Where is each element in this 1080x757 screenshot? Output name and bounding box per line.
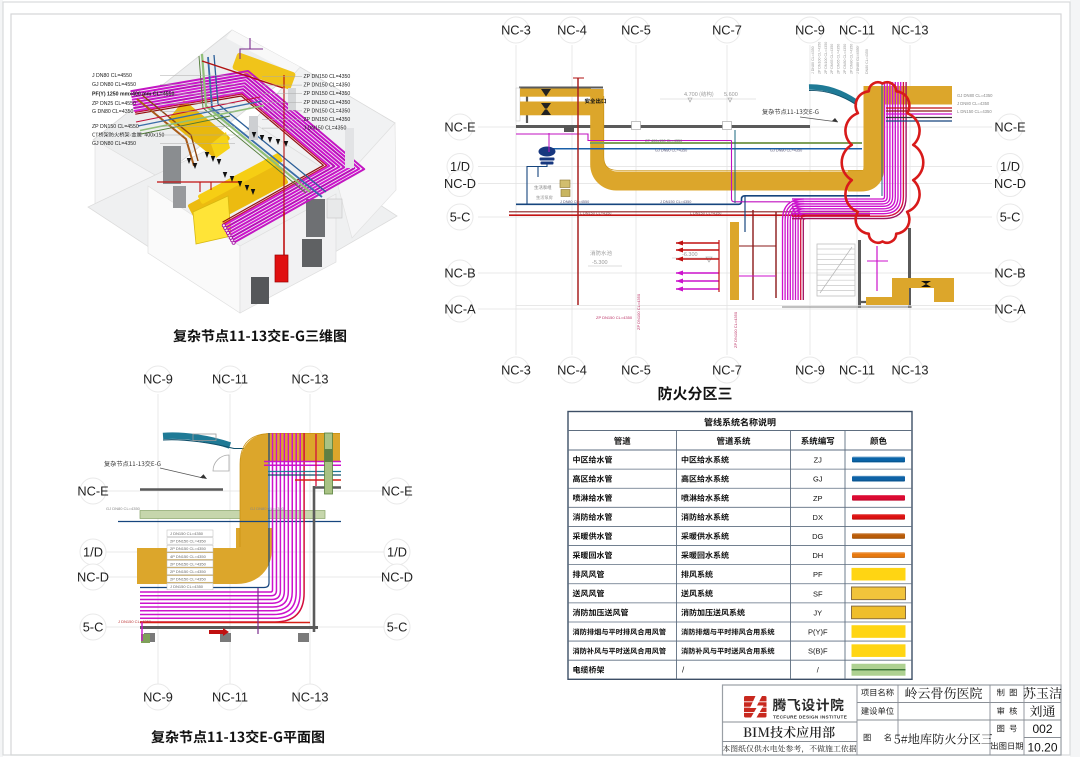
svg-text:TECFURE DESIGN INSTITUTE: TECFURE DESIGN INSTITUTE (773, 715, 847, 720)
svg-text:GJ DN80 CL=4350: GJ DN80 CL=4350 (106, 506, 141, 511)
svg-text:J DN80 CL=4550: J DN80 CL=4550 (560, 200, 589, 204)
svg-text:J DN150 CL=4350: J DN150 CL=4350 (170, 531, 204, 536)
svg-text:J DN150 CL=4350: J DN150 CL=4350 (118, 619, 152, 624)
svg-text:G DN80 CL=4350: G DN80 CL=4350 (92, 109, 133, 115)
svg-text:S(B)F: S(B)F (808, 647, 828, 656)
svg-text:NC-5: NC-5 (621, 22, 651, 37)
svg-text:DH: DH (812, 551, 823, 560)
svg-text:PF(Y) 1250 mmx400 mm CL=4550: PF(Y) 1250 mmx400 mm CL=4550 (92, 92, 174, 98)
svg-text:NC-9: NC-9 (795, 362, 825, 377)
svg-text:4.700: 4.700 (684, 92, 698, 98)
svg-text:NC-9: NC-9 (143, 371, 173, 386)
svg-text:ZP DN150 CL=4350: ZP DN150 CL=4350 (304, 74, 351, 80)
svg-text:NC-E: NC-E (381, 483, 412, 498)
svg-text:NC-D: NC-D (77, 569, 109, 584)
svg-text:2P DN150 CL=4350: 2P DN150 CL=4350 (170, 577, 207, 582)
svg-text:NC-11: NC-11 (839, 22, 875, 37)
svg-text:5-C: 5-C (83, 619, 104, 634)
svg-text:NC-E: NC-E (444, 119, 475, 134)
svg-text:NC-9: NC-9 (795, 22, 825, 37)
svg-text:J DN150 CL=4350: J DN150 CL=4350 (660, 200, 691, 204)
svg-text:2P DN100 CL=4350: 2P DN100 CL=4350 (824, 42, 828, 74)
svg-text:NC-A: NC-A (994, 301, 1026, 316)
svg-text:NC-3: NC-3 (501, 362, 531, 377)
svg-text:NC-11: NC-11 (212, 371, 248, 386)
svg-text:5-C: 5-C (387, 619, 408, 634)
svg-text:ZP DN25 CL=4550: ZP DN25 CL=4550 (92, 101, 136, 107)
svg-text:-5.300: -5.300 (592, 260, 608, 266)
svg-text:CT 400x150 CL=4350: CT 400x150 CL=4350 (645, 139, 682, 143)
svg-text:GJ: GJ (813, 475, 823, 484)
svg-text:2P DN150 CL=4350: 2P DN150 CL=4350 (170, 546, 207, 551)
svg-text:DX: DX (813, 513, 823, 522)
svg-text:J DN80 CL=4350: J DN80 CL=4350 (856, 46, 860, 74)
svg-text:NC-13: NC-13 (292, 371, 329, 386)
svg-text:L DN150 CL=4350: L DN150 CL=4350 (580, 212, 611, 216)
svg-text:2P DN150 CL=4350: 2P DN150 CL=4350 (170, 569, 207, 574)
svg-text:ZJ: ZJ (814, 456, 823, 465)
svg-text:ZP DN100 CL=4350: ZP DN100 CL=4350 (733, 311, 738, 348)
svg-text:J DN80 CL=4350: J DN80 CL=4350 (957, 101, 990, 106)
svg-text:ZP DN150 CL=4350: ZP DN150 CL=4350 (304, 117, 351, 123)
svg-text:GJ DN80 CL=4350: GJ DN80 CL=4350 (655, 149, 687, 153)
svg-text:NC-7: NC-7 (712, 22, 742, 37)
svg-text:NC-7: NC-7 (712, 362, 742, 377)
svg-text:GJ DN80 CL=4550: GJ DN80 CL=4550 (92, 82, 136, 88)
svg-text:10.20: 10.20 (1027, 741, 1057, 755)
svg-text:NC-4: NC-4 (557, 22, 587, 37)
svg-text:NC-4: NC-4 (557, 362, 587, 377)
svg-text:NC-D: NC-D (381, 569, 413, 584)
svg-text:002: 002 (1032, 722, 1052, 736)
svg-text:NC-5: NC-5 (621, 362, 651, 377)
svg-text:2P DN80 CL=4350: 2P DN80 CL=4350 (849, 44, 853, 74)
svg-text:NC-11: NC-11 (212, 689, 248, 704)
svg-text:2P DN80 CL=4350: 2P DN80 CL=4350 (843, 44, 847, 74)
svg-text:PF: PF (813, 570, 823, 579)
svg-text:2P DN65 CL=4350: 2P DN65 CL=4350 (837, 44, 841, 74)
svg-text:SF: SF (813, 589, 823, 598)
svg-text:NC-11: NC-11 (839, 362, 875, 377)
svg-text:P(Y)F: P(Y)F (808, 628, 828, 637)
svg-text:ZP DN150 CL=4350: ZP DN150 CL=4350 (596, 315, 633, 320)
svg-text:DN80 CL=4350: DN80 CL=4350 (865, 49, 869, 74)
svg-text:NC-E: NC-E (77, 483, 108, 498)
svg-text:NC-E: NC-E (994, 119, 1025, 134)
svg-text:NC-9: NC-9 (143, 689, 173, 704)
svg-text:1/D: 1/D (387, 544, 407, 559)
svg-text:NC-A: NC-A (444, 301, 476, 316)
svg-text:NC-B: NC-B (994, 265, 1025, 280)
svg-text:NC-13: NC-13 (892, 22, 929, 37)
svg-text:L DN150 CL=4350: L DN150 CL=4350 (690, 212, 721, 216)
svg-text:J DN150 CL=4350: J DN150 CL=4350 (304, 126, 347, 132)
svg-text:-6.300: -6.300 (682, 252, 698, 258)
svg-text:5.600: 5.600 (724, 92, 738, 98)
svg-text:2P DN150 CL=4350: 2P DN150 CL=4350 (170, 539, 207, 544)
svg-text:ZP DN150 CL=4350: ZP DN150 CL=4350 (304, 83, 351, 89)
svg-text:GJ DN80 CL=4350: GJ DN80 CL=4350 (250, 506, 285, 511)
svg-text:JY: JY (813, 608, 822, 617)
svg-text:ZP DN150 CL=4350: ZP DN150 CL=4350 (304, 100, 351, 106)
svg-text:ZP DN150 CL=4350: ZP DN150 CL=4350 (304, 91, 351, 97)
svg-text:ZP DN150 CL=4350: ZP DN150 CL=4350 (304, 108, 351, 114)
svg-text:5-C: 5-C (450, 209, 471, 224)
svg-text:NC-13: NC-13 (292, 689, 329, 704)
svg-text:GJ DN80 CL=4350: GJ DN80 CL=4350 (770, 149, 802, 153)
svg-text:1/D: 1/D (83, 544, 103, 559)
svg-text:J DN150 CL=4350: J DN150 CL=4350 (170, 584, 204, 589)
svg-text:NC-B: NC-B (444, 265, 475, 280)
svg-text:2P DN65 CL=4350: 2P DN65 CL=4350 (830, 44, 834, 74)
svg-text:5-C: 5-C (1000, 209, 1021, 224)
svg-text:ZP: ZP (813, 494, 823, 503)
svg-text:ZP DN150 CL=4550: ZP DN150 CL=4550 (92, 124, 139, 130)
svg-text:GJ DN80 CL=4350: GJ DN80 CL=4350 (92, 141, 136, 147)
svg-text:GJ DN80 CL=4350: GJ DN80 CL=4350 (957, 93, 993, 98)
svg-text:J DN80 CL=4550: J DN80 CL=4550 (92, 73, 132, 79)
svg-text:2P DN150 CL=4350: 2P DN150 CL=4350 (170, 561, 207, 566)
svg-text:4P DN150 CL=4350: 4P DN150 CL=4350 (170, 554, 207, 559)
svg-text:DG: DG (812, 532, 823, 541)
svg-text:ZP DN100 CL=4350: ZP DN100 CL=4350 (636, 293, 641, 330)
svg-text:J DN80 CL=4350: J DN80 CL=4350 (811, 46, 815, 74)
svg-text:NC-D: NC-D (994, 176, 1026, 191)
svg-text:NC-13: NC-13 (892, 362, 929, 377)
svg-text:NC-3: NC-3 (501, 22, 531, 37)
svg-text:2P DN100 CL=4350: 2P DN100 CL=4350 (817, 42, 821, 74)
svg-text:L DN150 CL=4350: L DN150 CL=4350 (957, 109, 992, 114)
svg-text:NC-D: NC-D (444, 176, 476, 191)
